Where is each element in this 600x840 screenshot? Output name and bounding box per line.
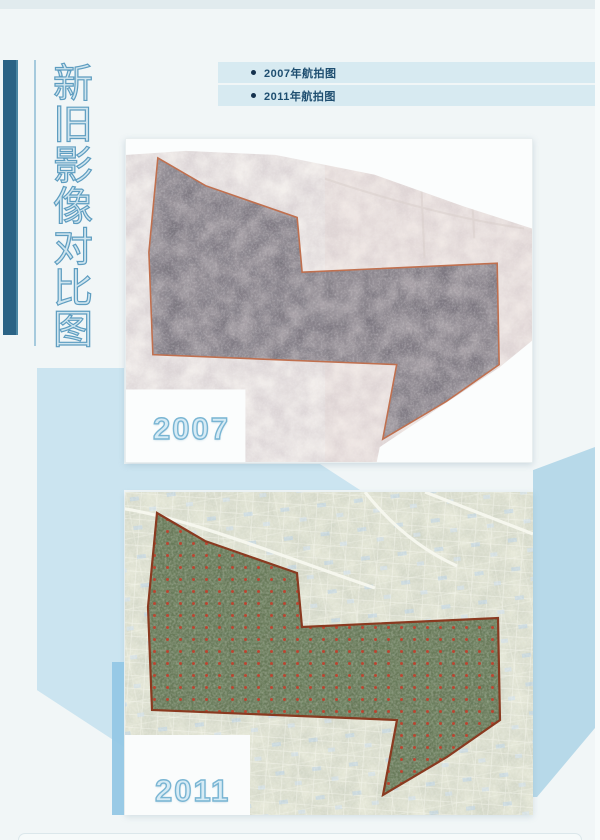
right-margin-strip bbox=[595, 0, 600, 840]
decor-right-column bbox=[533, 447, 595, 797]
bullet-icon bbox=[251, 70, 256, 75]
bottom-card-edge bbox=[18, 833, 582, 840]
map-2007-year-label: 2007 bbox=[153, 411, 230, 447]
title-rule-line bbox=[34, 60, 36, 346]
legend-item-2011: 2011年航拍图 bbox=[218, 85, 595, 106]
page-title: 新旧影像对比图 bbox=[38, 62, 100, 358]
title-accent-bar bbox=[3, 60, 18, 335]
map-2011-year-label: 2011 bbox=[155, 773, 230, 809]
legend-item-label: 2007年航拍图 bbox=[264, 65, 336, 81]
decor-bottom-band bbox=[37, 464, 360, 490]
bullet-icon bbox=[251, 93, 256, 98]
map-card-2011: 2011 bbox=[125, 492, 533, 815]
legend-item-label: 2011年航拍图 bbox=[264, 88, 336, 104]
decor-vertical-strip bbox=[112, 662, 124, 815]
top-strip bbox=[0, 0, 600, 9]
decor-left-panel bbox=[37, 368, 124, 747]
legend: 2007年航拍图 2011年航拍图 bbox=[218, 62, 595, 106]
legend-item-2007: 2007年航拍图 bbox=[218, 62, 595, 83]
map-card-2007: 2007 bbox=[125, 138, 533, 463]
